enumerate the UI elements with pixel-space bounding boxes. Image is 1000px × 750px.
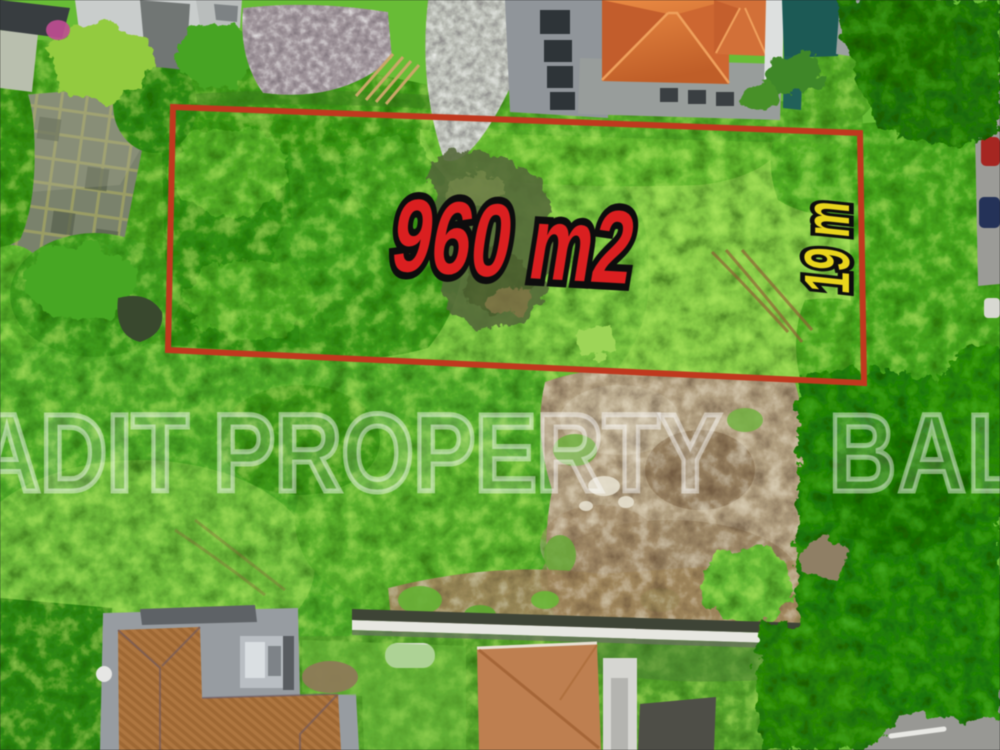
- svg-text:960 m2: 960 m2: [384, 178, 642, 306]
- svg-text:BALI: BALI: [829, 392, 1000, 515]
- svg-text:RADIT PROPERTY: RADIT PROPERTY: [0, 392, 721, 515]
- svg-text:19 m: 19 m: [791, 197, 863, 297]
